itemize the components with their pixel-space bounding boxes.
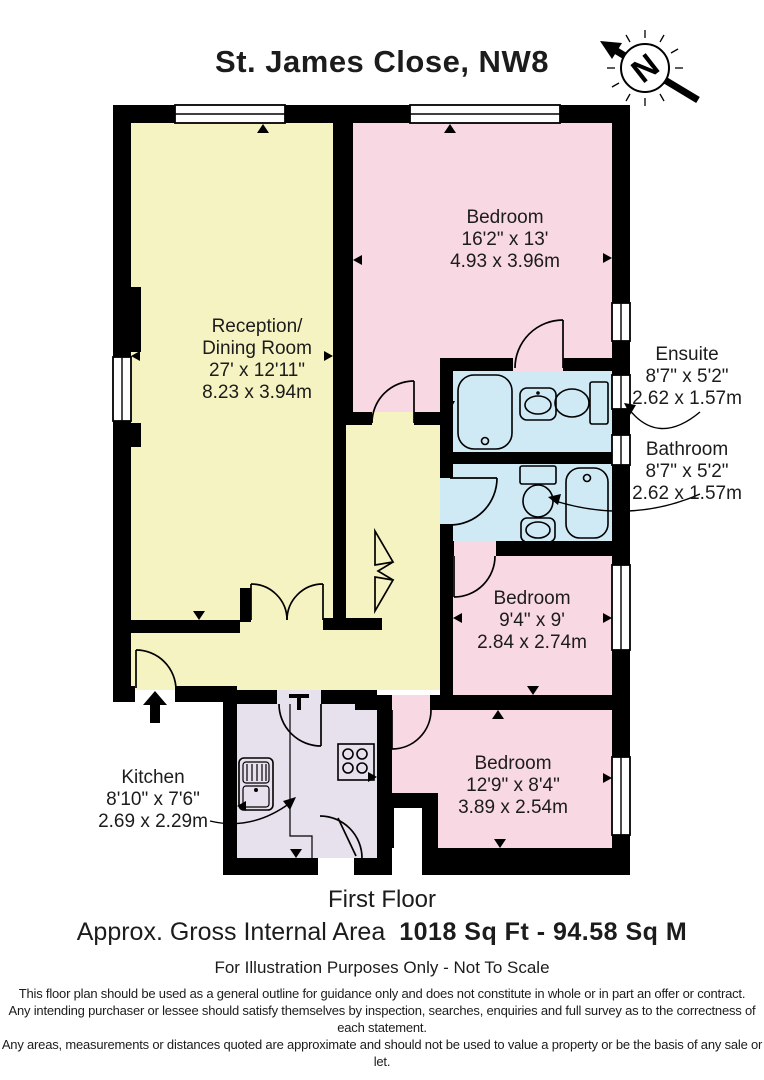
room-size-metric: 2.62 x 1.57m xyxy=(632,483,742,505)
wall-kitchen-top-a xyxy=(223,690,277,704)
disclaimer-line: Any areas, measurements or distances quo… xyxy=(0,1036,764,1070)
kitchen-floor xyxy=(237,690,377,858)
room-size-metric: 8.23 x 3.94m xyxy=(202,382,312,404)
window-bedroom3-right xyxy=(612,757,630,835)
wall-ensuite-bathroom xyxy=(453,452,612,464)
wall-bedroom1-hall-a xyxy=(347,412,372,425)
disclaimer-line: Any intending purchaser or lessee should… xyxy=(0,1002,764,1036)
room-name: Dining Room xyxy=(202,338,312,360)
room-size-metric: 2.84 x 2.74m xyxy=(477,632,587,654)
window-reception-top xyxy=(175,105,285,123)
room-name: Reception/ xyxy=(202,316,312,338)
room-size-imperial: 8'7" x 5'2" xyxy=(632,461,742,483)
room-size-metric: 4.93 x 3.96m xyxy=(450,251,560,273)
ensuite-floor xyxy=(453,371,612,452)
room-label-ensuite: Ensuite 8'7" x 5'2" 2.62 x 1.57m xyxy=(632,344,742,410)
bedroom1-floor-left xyxy=(353,123,440,412)
compass: N xyxy=(600,30,698,106)
wall-chimney-breast xyxy=(113,287,141,352)
room-name: Bedroom xyxy=(450,207,560,229)
wall-kitchen-bottom-a xyxy=(223,858,318,875)
window-bedroom1-right xyxy=(612,303,630,341)
disclaimer: This floor plan should be used as a gene… xyxy=(0,985,764,1070)
room-name: Ensuite xyxy=(632,344,742,366)
wall-hall-south-left xyxy=(113,620,240,633)
area-label: Approx. Gross Internal Area xyxy=(77,918,385,946)
illustration-note: For Illustration Purposes Only - Not To … xyxy=(0,958,764,978)
window-bedroom1-top xyxy=(410,105,560,123)
room-label-bathroom: Bathroom 8'7" x 5'2" 2.62 x 1.57m xyxy=(632,439,742,505)
wall-reception-bedroom1 xyxy=(333,105,353,425)
wall-spine-upper xyxy=(440,358,453,478)
wall-bathroom-bedroom2-b xyxy=(496,541,612,556)
wall-bathroom-bedroom2-a xyxy=(440,541,454,556)
room-size-imperial: 8'7" x 5'2" xyxy=(632,366,742,388)
floorplan-page: St. James Close, NW8 xyxy=(0,0,764,1080)
entrance-arrow xyxy=(143,691,167,723)
room-name: Bathroom xyxy=(632,439,742,461)
room-size-imperial: 16'2" x 13' xyxy=(450,229,560,251)
wall-kitchen-bottom-b xyxy=(354,858,392,875)
floor-name: First Floor xyxy=(0,886,764,914)
gross-internal-area: Approx. Gross Internal Area1018 Sq Ft - … xyxy=(0,918,764,947)
room-label-kitchen: Kitchen 8'10" x 7'6" 2.69 x 2.29m xyxy=(98,767,208,833)
wall-kitchen-right xyxy=(377,704,392,875)
room-name: Bedroom xyxy=(458,753,568,775)
room-name: Bedroom xyxy=(477,588,587,610)
room-size-metric: 2.69 x 2.29m xyxy=(98,811,208,833)
window-reception-left xyxy=(113,357,131,421)
wall-hall-south-right xyxy=(323,618,382,630)
room-label-bedroom1: Bedroom 16'2" x 13' 4.93 x 3.96m xyxy=(450,207,560,273)
room-size-imperial: 27' x 12'11" xyxy=(202,360,312,382)
room-size-metric: 2.62 x 1.57m xyxy=(632,388,742,410)
wall-kitchen-left xyxy=(223,692,237,875)
wall-bedroom23-b xyxy=(430,695,630,710)
wall-bedroom3-bottom xyxy=(420,848,630,875)
room-label-reception: Reception/ Dining Room 27' x 12'11" 8.23… xyxy=(202,316,312,404)
wall-bedroom1-ensuite-b xyxy=(563,358,612,371)
window-bedroom2-right xyxy=(612,565,630,650)
wall-hall-south-stub xyxy=(240,588,251,622)
window-bathroom-right xyxy=(612,435,630,465)
room-size-imperial: 8'10" x 7'6" xyxy=(98,789,208,811)
exterior-notch xyxy=(394,808,422,875)
room-label-bedroom3: Bedroom 12'9" x 8'4" 3.89 x 2.54m xyxy=(458,753,568,819)
wall-reception-hall xyxy=(333,420,346,620)
disclaimer-line: This floor plan should be used as a gene… xyxy=(0,985,764,1002)
wall-entry-a xyxy=(113,686,135,702)
room-name: Kitchen xyxy=(98,767,208,789)
room-label-bedroom2: Bedroom 9'4" x 9' 2.84 x 2.74m xyxy=(477,588,587,654)
wall-left-pier xyxy=(113,423,141,447)
room-size-imperial: 9'4" x 9' xyxy=(477,610,587,632)
area-value: 1018 Sq Ft - 94.58 Sq M xyxy=(399,918,687,946)
room-size-imperial: 12'9" x 8'4" xyxy=(458,775,568,797)
room-size-metric: 3.89 x 2.54m xyxy=(458,797,568,819)
